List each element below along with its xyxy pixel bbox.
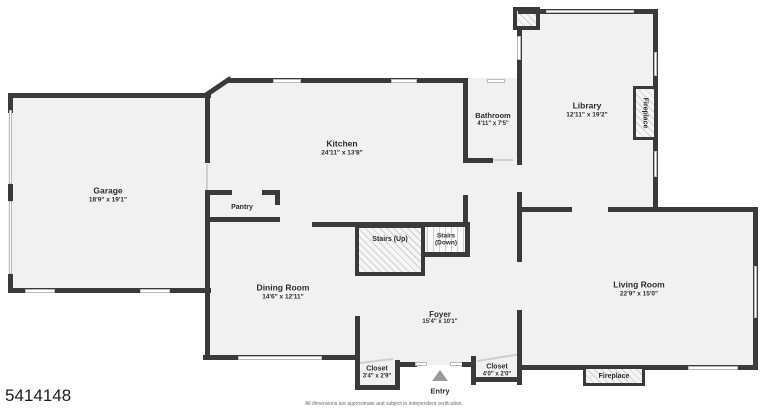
listing-number: 5414148	[5, 386, 71, 406]
room-label-closet-right: Closet 4'0" x 2'0"	[483, 364, 512, 379]
stairs-up	[355, 224, 425, 276]
room-label-living: Living Room 22'9" x 15'0"	[613, 280, 664, 297]
room-label-foyer: Foyer 15'4" x 10'1"	[422, 310, 457, 326]
window	[273, 79, 301, 83]
window	[140, 289, 170, 293]
window	[688, 366, 738, 370]
entry-label: Entry	[430, 388, 449, 397]
wall-segment	[463, 158, 493, 163]
wall-segment	[517, 310, 522, 385]
window	[517, 36, 521, 60]
wall-segment	[205, 190, 232, 195]
garage-door	[9, 201, 12, 274]
door-opening	[206, 164, 208, 190]
room-label-library: Library 12'11" x 19'2"	[566, 101, 607, 118]
wall-segment	[205, 93, 210, 163]
wall-segment	[517, 192, 522, 262]
wall-segment	[395, 362, 417, 367]
wall-segment	[226, 78, 467, 83]
stairs-up-label: Stairs (Up)	[372, 236, 407, 244]
wall-segment	[205, 190, 210, 360]
window	[754, 266, 757, 318]
wall-segment	[205, 217, 280, 222]
room-label-dining: Dining Room 14'6" x 12'11"	[257, 283, 310, 300]
window	[654, 151, 657, 177]
room-label-pantry: Pantry	[231, 204, 253, 212]
stairs-down-label: Stairs (Down)	[435, 233, 457, 248]
room-label-bathroom: Bathroom 4'11" x 7'5"	[475, 112, 510, 128]
wall-segment	[463, 78, 468, 158]
wall-segment	[8, 184, 13, 201]
window	[654, 52, 657, 76]
fireplace-living: Fireplace	[583, 366, 645, 386]
wall-segment	[8, 93, 211, 98]
window	[25, 289, 55, 293]
garage-door	[9, 110, 12, 184]
wall-segment	[275, 190, 280, 205]
room-label-garage: Garage 18'9" x 19'1"	[89, 186, 127, 203]
window	[487, 79, 505, 83]
fireplace-living-label: Fireplace	[599, 373, 630, 380]
floor-plan: Fireplace Fireplace Garage 18'9" x 19'1"…	[0, 0, 768, 412]
door-leaf	[493, 159, 513, 161]
wall-segment	[423, 252, 470, 257]
entry-arrow-icon	[432, 370, 448, 381]
window	[391, 79, 417, 83]
window	[546, 10, 634, 13]
wall-segment	[355, 316, 360, 390]
wall-segment	[355, 385, 400, 390]
fireplace-library-label: Fireplace	[642, 98, 649, 129]
room-label-kitchen: Kitchen 24'11" x 13'8"	[321, 139, 362, 156]
wall-segment	[608, 207, 758, 212]
room-label-closet-left: Closet 3'4" x 2'9"	[363, 366, 392, 381]
window	[238, 356, 322, 360]
entry-sidelight	[415, 362, 427, 366]
wall-segment	[517, 207, 572, 212]
disclaimer-text: All dimensions are approximate and subje…	[305, 401, 463, 407]
